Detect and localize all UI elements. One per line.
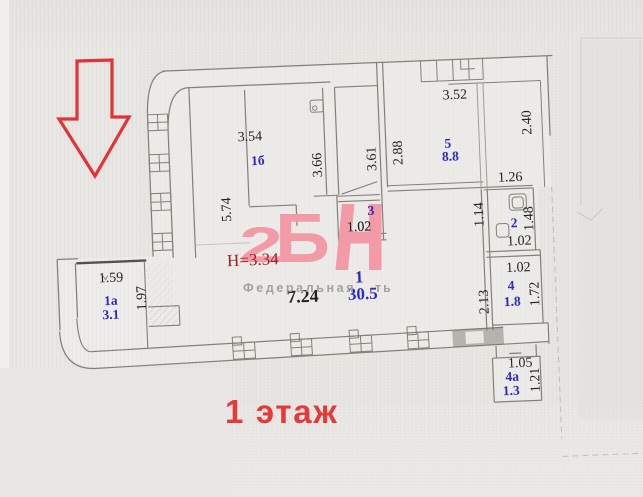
svg-text:1.97: 1.97: [134, 286, 150, 311]
svg-text:1.72: 1.72: [527, 281, 543, 306]
svg-text:3.1: 3.1: [102, 307, 120, 323]
svg-text:4: 4: [507, 278, 515, 293]
svg-text:1б: 1б: [251, 153, 265, 169]
svg-text:1.02: 1.02: [507, 234, 532, 250]
svg-text:1 этаж: 1 этаж: [225, 393, 338, 430]
svg-text:1.02: 1.02: [506, 260, 531, 276]
svg-text:1.59: 1.59: [98, 270, 123, 286]
svg-text:2.88: 2.88: [391, 140, 407, 165]
svg-text:Н=3.34: Н=3.34: [227, 249, 280, 270]
svg-text:3.54: 3.54: [237, 129, 262, 145]
svg-text:3.66: 3.66: [310, 152, 326, 177]
svg-text:Б: Б: [275, 199, 330, 277]
svg-text:1.26: 1.26: [498, 170, 523, 186]
svg-text:1.48: 1.48: [521, 206, 537, 231]
svg-text:ть: ть: [375, 281, 393, 295]
svg-text:2.40: 2.40: [520, 110, 536, 135]
svg-text:3.61: 3.61: [364, 146, 380, 171]
svg-text:1.14: 1.14: [472, 202, 488, 227]
svg-text:5.74: 5.74: [219, 197, 235, 222]
svg-text:1.21: 1.21: [528, 367, 544, 392]
svg-text:8.8: 8.8: [442, 148, 460, 164]
svg-text:Федеральная: Федеральная: [243, 281, 356, 295]
svg-text:3.52: 3.52: [442, 87, 467, 103]
svg-text:2: 2: [510, 215, 518, 230]
svg-text:2.13: 2.13: [477, 289, 493, 314]
svg-text:1.3: 1.3: [503, 383, 521, 399]
svg-text:1.02: 1.02: [347, 219, 372, 235]
svg-text:3: 3: [367, 203, 375, 218]
svg-text:1.8: 1.8: [503, 293, 521, 309]
